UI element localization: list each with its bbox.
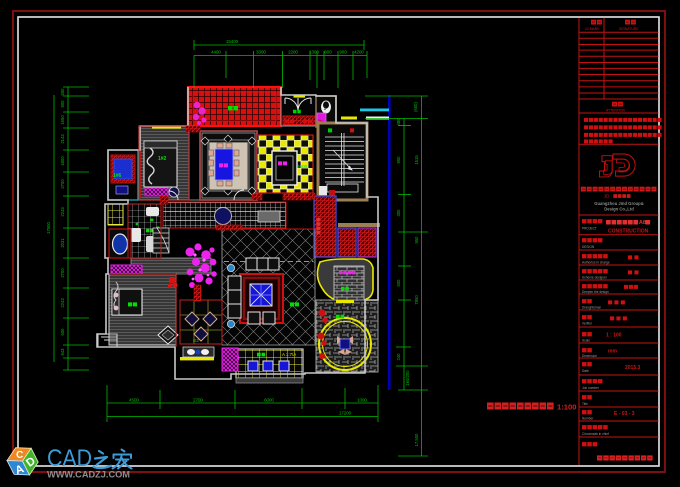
svg-text:2031: 2031 bbox=[60, 238, 65, 248]
svg-text:B3: B3 bbox=[193, 338, 199, 343]
svg-text:550: 550 bbox=[60, 88, 65, 96]
svg-text:950: 950 bbox=[396, 156, 401, 164]
svg-text:900: 900 bbox=[60, 100, 65, 108]
svg-text:PROJECT: PROJECT bbox=[582, 227, 597, 231]
svg-text:Dimension: Dimension bbox=[582, 354, 597, 358]
svg-text:3300: 3300 bbox=[256, 50, 266, 55]
svg-text:1: 1 bbox=[324, 106, 327, 112]
svg-text:300: 300 bbox=[396, 209, 401, 217]
svg-text:Title: Title bbox=[582, 402, 588, 406]
svg-text:Date: Date bbox=[582, 369, 589, 373]
svg-text:17200: 17200 bbox=[339, 411, 352, 416]
svg-text:800: 800 bbox=[324, 50, 332, 55]
svg-text:4500: 4500 bbox=[129, 398, 139, 403]
svg-text:17500: 17500 bbox=[46, 222, 51, 234]
svg-text:mm: mm bbox=[608, 349, 617, 355]
svg-text:2700: 2700 bbox=[60, 179, 65, 189]
svg-text:2243: 2243 bbox=[60, 207, 65, 217]
svg-text:CAD: CAD bbox=[47, 445, 92, 472]
svg-text:4400: 4400 bbox=[211, 50, 221, 55]
svg-text:2243: 2243 bbox=[60, 298, 65, 308]
svg-text:Number: Number bbox=[582, 417, 594, 421]
svg-text:4200: 4200 bbox=[354, 50, 364, 55]
svg-text:JD: JD bbox=[604, 194, 610, 199]
svg-text:E - 03 - 3: E - 03 - 3 bbox=[614, 411, 635, 417]
svg-text:Circumslab in chief: Circumslab in chief bbox=[582, 432, 609, 436]
svg-text:Deepen the design: Deepen the design bbox=[582, 290, 609, 294]
svg-text:1 : 100: 1 : 100 bbox=[606, 333, 622, 339]
svg-text:1515: 1515 bbox=[414, 155, 419, 165]
svg-text:DESIGN: DESIGN bbox=[582, 245, 595, 249]
svg-text:Guangzhou Jmd Group&: Guangzhou Jmd Group& bbox=[594, 201, 644, 206]
svg-text:17.500: 17.500 bbox=[414, 433, 419, 446]
svg-text:Design Co.,Ltd: Design Co.,Ltd bbox=[604, 207, 634, 212]
svg-text:6000: 6000 bbox=[264, 398, 274, 403]
svg-text:1000: 1000 bbox=[357, 398, 367, 403]
svg-text:950: 950 bbox=[414, 236, 419, 244]
svg-text:1:100: 1:100 bbox=[557, 403, 576, 412]
svg-text:A 1:7/A: A 1:7/A bbox=[282, 352, 296, 357]
svg-text:900: 900 bbox=[339, 50, 347, 55]
svg-text:2200: 2200 bbox=[288, 50, 298, 55]
svg-text:SIGNATURE: SIGNATURE bbox=[619, 27, 639, 31]
svg-text:600: 600 bbox=[60, 328, 65, 336]
svg-text:Job number: Job number bbox=[582, 386, 600, 390]
svg-text:2700: 2700 bbox=[193, 398, 203, 403]
svg-text:480: 480 bbox=[396, 118, 401, 126]
svg-text:500: 500 bbox=[396, 279, 401, 287]
svg-text:ATTENTION: ATTENTION bbox=[606, 109, 626, 113]
svg-text:C: C bbox=[16, 450, 24, 461]
svg-text:Scheme designer: Scheme designer bbox=[582, 276, 608, 280]
svg-text:3600: 3600 bbox=[297, 164, 308, 169]
svg-text:1800: 1800 bbox=[60, 156, 65, 166]
svg-text:Verifier: Verifier bbox=[582, 322, 593, 326]
svg-text:Scale: Scale bbox=[582, 339, 590, 343]
svg-text:1#6: 1#6 bbox=[113, 173, 122, 179]
svg-text:A8: A8 bbox=[639, 220, 646, 226]
svg-text:2143: 2143 bbox=[60, 134, 65, 144]
svg-text:13 MARK: 13 MARK bbox=[585, 27, 600, 31]
svg-text:240: 240 bbox=[396, 353, 401, 361]
svg-text:1650: 1650 bbox=[60, 115, 65, 125]
svg-text:160/200: 160/200 bbox=[405, 370, 410, 386]
svg-text:WWW.CADZJ.COM: WWW.CADZJ.COM bbox=[47, 470, 130, 480]
svg-text:(650): (650) bbox=[413, 102, 418, 112]
svg-text:1#2: 1#2 bbox=[158, 156, 167, 162]
svg-text:7850: 7850 bbox=[414, 295, 419, 305]
svg-text:2700: 2700 bbox=[60, 268, 65, 278]
svg-text:15400: 15400 bbox=[226, 39, 239, 44]
svg-text:943: 943 bbox=[60, 348, 65, 356]
svg-text:Draughtsman: Draughtsman bbox=[582, 306, 601, 310]
svg-text:CONSTRUCTION: CONSTRUCTION bbox=[608, 229, 649, 235]
svg-text:2015.3: 2015.3 bbox=[625, 365, 641, 371]
svg-text:Authorize In charge: Authorize In charge bbox=[582, 261, 610, 265]
svg-text:1300: 1300 bbox=[309, 50, 319, 55]
